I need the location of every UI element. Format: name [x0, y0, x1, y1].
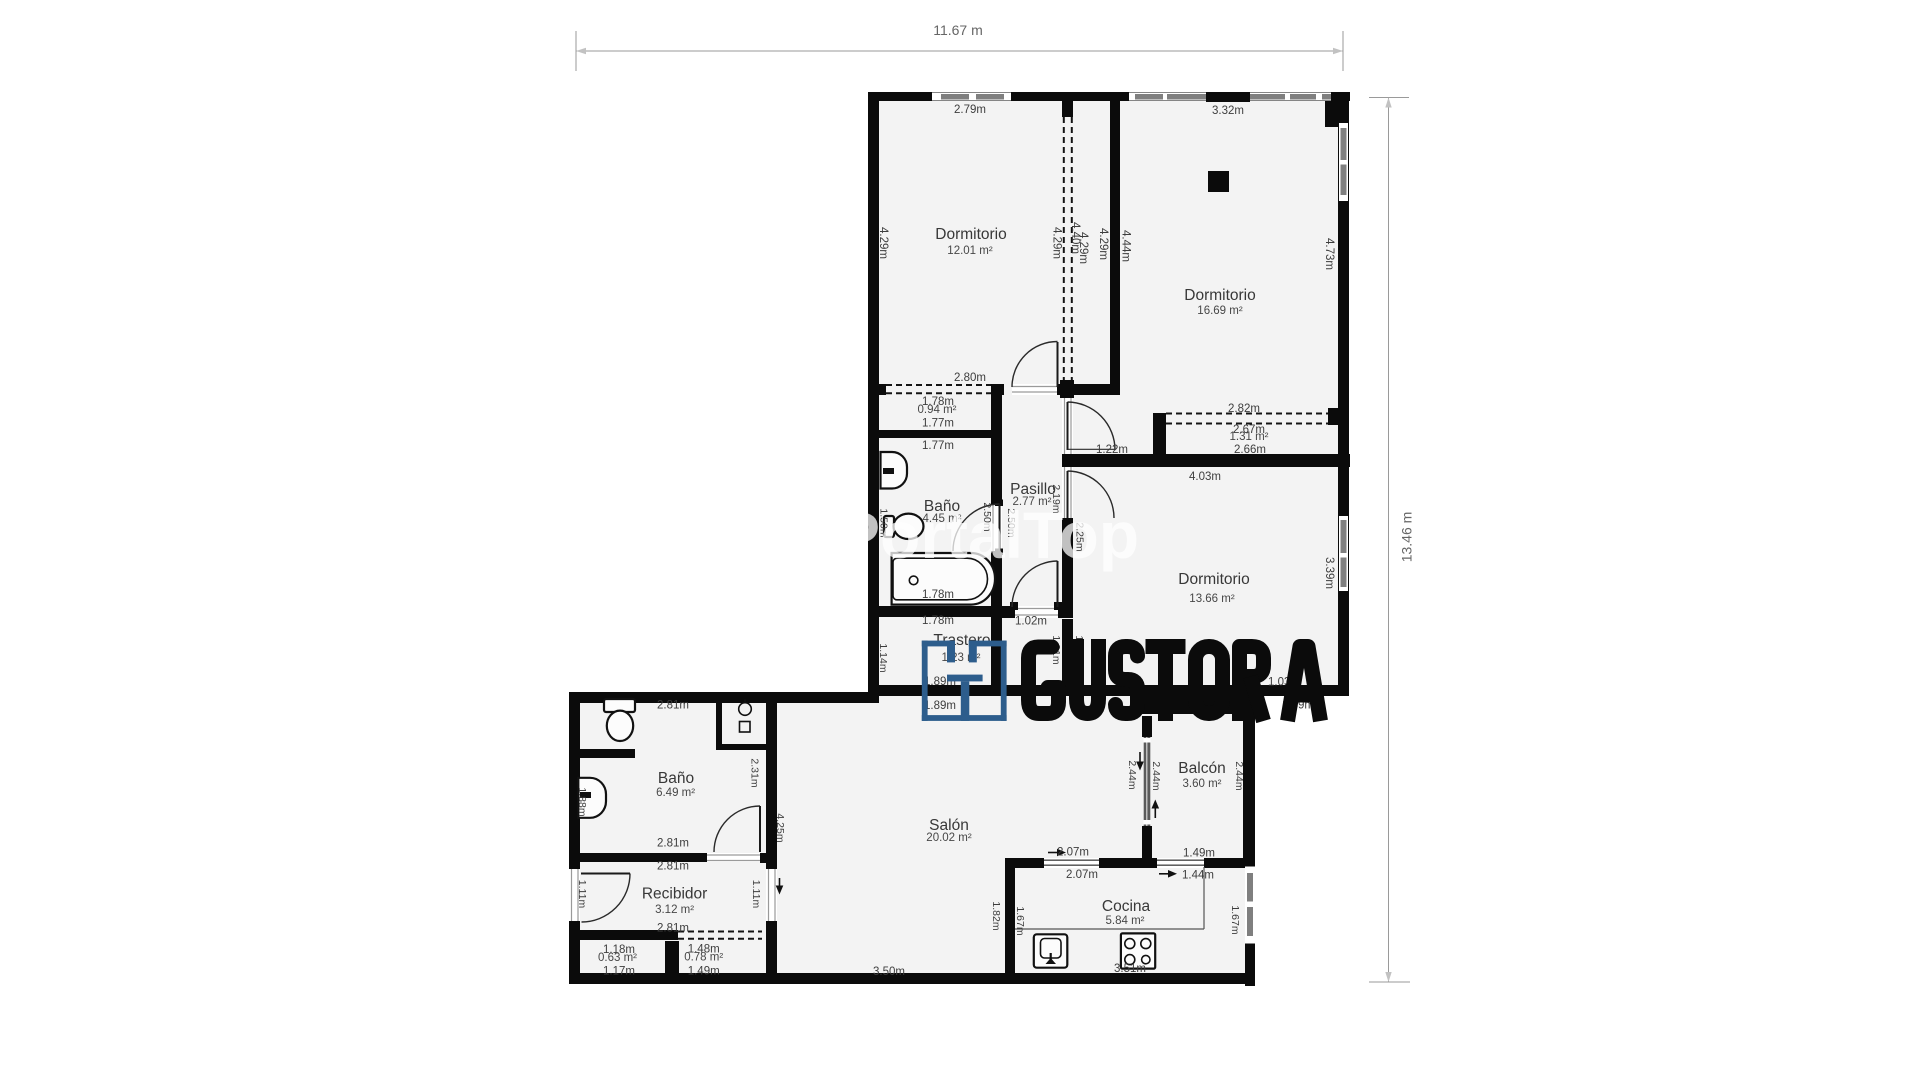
svg-text:1.49m: 1.49m [1183, 848, 1215, 860]
svg-text:2.81m: 2.81m [657, 838, 689, 850]
svg-text:2.79m: 2.79m [954, 104, 986, 116]
svg-text:2.44m: 2.44m [1126, 760, 1138, 789]
svg-text:2.07m: 2.07m [1066, 869, 1098, 881]
svg-text:16.69 m²: 16.69 m² [1197, 305, 1243, 317]
svg-text:1.49m: 1.49m [688, 966, 720, 978]
svg-text:4.29m: 4.29m [1050, 227, 1062, 259]
svg-text:4.44m: 4.44m [1119, 230, 1131, 262]
svg-text:1.77m: 1.77m [922, 418, 954, 430]
svg-text:1.14m: 1.14m [877, 643, 889, 672]
svg-text:12.01 m²: 12.01 m² [947, 245, 993, 257]
svg-text:6.49 m²: 6.49 m² [656, 787, 695, 799]
svg-text:4.29m: 4.29m [877, 227, 889, 259]
svg-text:1.31 m²: 1.31 m² [1230, 431, 1269, 443]
svg-text:2.31m: 2.31m [749, 758, 761, 787]
svg-text:1.82m: 1.82m [990, 901, 1002, 930]
svg-text:Recibidor: Recibidor [642, 886, 707, 903]
svg-text:Baño: Baño [658, 770, 694, 787]
svg-text:1.78m: 1.78m [922, 589, 954, 601]
svg-text:4.73m: 4.73m [1323, 238, 1335, 270]
svg-text:1.44m: 1.44m [1182, 870, 1214, 882]
svg-text:Balcón: Balcón [1178, 760, 1225, 777]
svg-text:2.81m: 2.81m [657, 923, 689, 935]
svg-text:Cocina: Cocina [1102, 898, 1151, 915]
svg-text:2.44m: 2.44m [1150, 761, 1162, 790]
svg-text:2.82m: 2.82m [1228, 403, 1260, 415]
svg-text:4.29m: 4.29m [1077, 232, 1089, 264]
svg-text:3.51m: 3.51m [1114, 963, 1146, 975]
svg-text:20.02 m²: 20.02 m² [926, 832, 972, 844]
svg-text:1.02m: 1.02m [1015, 616, 1047, 628]
svg-text:1.77m: 1.77m [922, 440, 954, 452]
svg-text:0.63 m²: 0.63 m² [598, 952, 637, 964]
svg-text:0.94 m²: 0.94 m² [918, 404, 957, 416]
svg-text:Dormitorio: Dormitorio [1178, 571, 1249, 588]
svg-text:5.84 m²: 5.84 m² [1106, 915, 1145, 927]
svg-text:Dormitorio: Dormitorio [1184, 287, 1255, 304]
svg-text:3.39m: 3.39m [1323, 557, 1335, 589]
svg-text:13.46 m: 13.46 m [1399, 512, 1415, 563]
svg-text:4.03m: 4.03m [1189, 471, 1221, 483]
svg-text:3.32m: 3.32m [1212, 105, 1244, 117]
svg-text:1.22m: 1.22m [1096, 444, 1128, 456]
svg-text:1.11m: 1.11m [750, 880, 762, 909]
svg-text:2.44m: 2.44m [1233, 761, 1245, 790]
svg-text:1.88m: 1.88m [576, 787, 588, 816]
svg-text:13.66 m²: 13.66 m² [1189, 593, 1235, 605]
svg-text:Trastero: Trastero [933, 632, 990, 649]
svg-text:11.67 m: 11.67 m [933, 22, 983, 38]
svg-text:4.25m: 4.25m [774, 813, 786, 842]
svg-text:2.81m: 2.81m [657, 861, 689, 873]
svg-text:Dormitorio: Dormitorio [935, 226, 1006, 243]
svg-text:PortalTop: PortalTop [836, 498, 1139, 572]
svg-text:3.50m: 3.50m [873, 966, 905, 978]
svg-text:3.60 m²: 3.60 m² [1183, 778, 1222, 790]
svg-text:1.67m: 1.67m [1229, 905, 1241, 934]
svg-text:2.66m: 2.66m [1234, 444, 1266, 456]
svg-text:1.11m: 1.11m [576, 880, 588, 909]
svg-text:2.07m: 2.07m [1057, 847, 1089, 859]
svg-text:0.78 m²: 0.78 m² [684, 952, 723, 964]
svg-text:4.29m: 4.29m [1097, 228, 1109, 260]
svg-text:1.67m: 1.67m [1014, 906, 1026, 935]
svg-text:3.12 m²: 3.12 m² [655, 904, 694, 916]
svg-text:2.81m: 2.81m [657, 700, 689, 712]
svg-text:1.17m: 1.17m [603, 966, 635, 978]
svg-text:1.89m: 1.89m [924, 700, 956, 712]
svg-text:1.78m: 1.78m [922, 615, 954, 627]
svg-text:2.80m: 2.80m [954, 372, 986, 384]
